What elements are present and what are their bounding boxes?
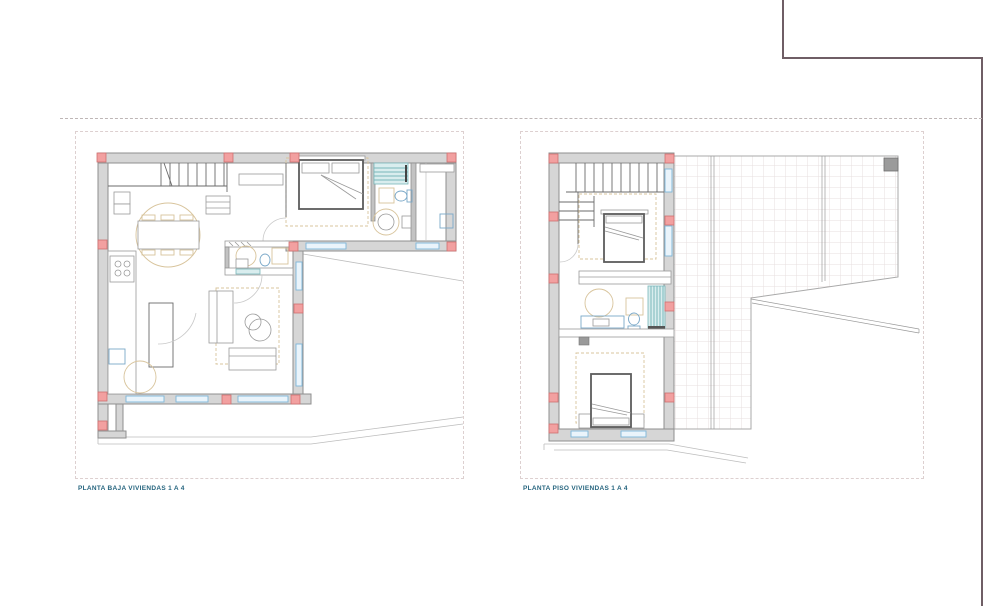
bedroom xyxy=(263,156,368,241)
shelf xyxy=(420,164,454,172)
washbasin xyxy=(585,289,613,317)
terrace xyxy=(673,156,919,429)
toilet xyxy=(260,254,270,266)
sheet-first-floor: PLANTA PISO VIVIENDAS 1 A 4 xyxy=(520,131,924,479)
dining-area xyxy=(136,203,200,267)
bedroom-2 xyxy=(576,353,644,428)
bedroom-1 xyxy=(579,194,671,284)
stairs xyxy=(108,163,283,214)
bathroom-wall xyxy=(559,329,674,337)
living-room xyxy=(158,288,279,370)
title-block-frame-notch-horizontal xyxy=(782,57,983,59)
kitchen-island xyxy=(149,303,173,367)
kitchen xyxy=(108,251,173,394)
plan-label-ground-floor: PLANTA BAJA VIVIENDAS 1 A 4 xyxy=(78,485,185,492)
bathroom xyxy=(559,286,674,345)
sheet-ground-floor: PLANTA BAJA VIVIENDAS 1 A 4 xyxy=(75,131,464,479)
bathroom-small xyxy=(225,241,293,303)
terrace-tiles xyxy=(673,156,898,429)
shower xyxy=(374,163,408,184)
terrace-railing xyxy=(751,299,919,333)
title-block-frame-notch-vertical xyxy=(782,0,784,57)
washbasin xyxy=(373,209,399,235)
upper-sheet-edge-dashes xyxy=(60,118,982,119)
vanity xyxy=(379,188,394,203)
sofa-horizontal xyxy=(229,348,276,370)
ground-floor-plan-drawing xyxy=(76,132,463,478)
sofa-vertical xyxy=(209,291,233,343)
bathroom-upper xyxy=(371,163,416,241)
closet xyxy=(579,271,671,284)
chimney xyxy=(884,158,898,171)
pillow xyxy=(606,216,642,223)
dining-table xyxy=(138,221,199,249)
drawing-canvas: PLANTA BAJA VIVIENDAS 1 A 4 xyxy=(0,0,1001,606)
first-floor-plan-drawing xyxy=(521,132,923,478)
porch-outline xyxy=(544,444,748,463)
plan-label-first-floor: PLANTA PISO VIVIENDAS 1 A 4 xyxy=(523,485,628,492)
plot-boundary-lines xyxy=(98,254,463,444)
ground-floor-walls xyxy=(98,153,456,438)
toilet xyxy=(395,190,412,202)
title-block-frame-right-edge xyxy=(981,57,983,606)
shower xyxy=(648,286,665,329)
lower-steps xyxy=(206,196,230,214)
pillow xyxy=(593,418,629,425)
pillow xyxy=(332,163,359,173)
pillow xyxy=(302,163,329,173)
toilet xyxy=(628,313,640,330)
